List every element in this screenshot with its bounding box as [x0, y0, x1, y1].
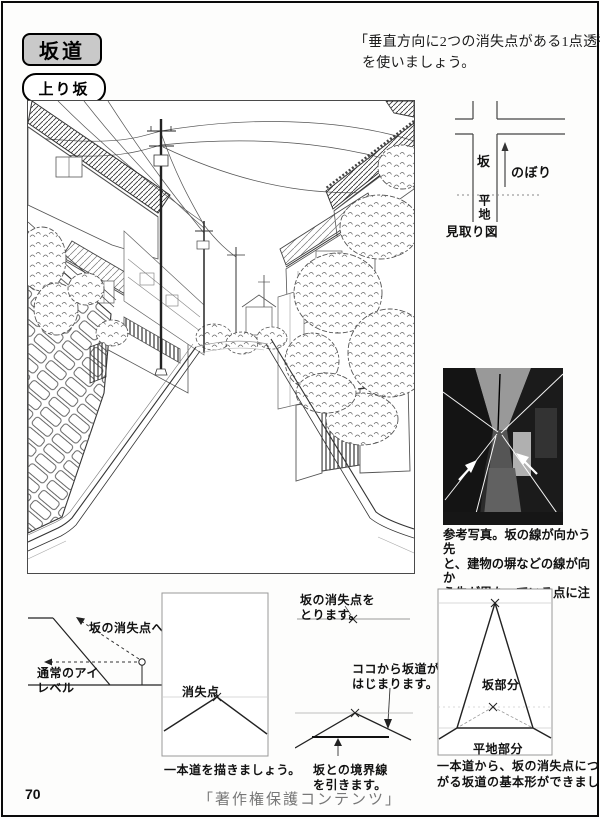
map-caption: 見取り図	[446, 221, 498, 240]
photo-caption-line2: と、建物の塀などの線が向か	[443, 557, 593, 586]
d4-slope-part-label: 坂部分	[482, 676, 520, 693]
section-label-pill: 上り坂	[22, 73, 106, 103]
street-illustration	[28, 101, 414, 573]
d2-vp-label: 消失点	[182, 683, 220, 700]
chapter-title: 坂道	[39, 35, 85, 64]
photo-caption-line1: 参考写真。坂の線が向かう先	[443, 528, 593, 557]
single-road-diagram	[160, 592, 272, 762]
d2-caption: 一本道を描きましょう。	[164, 761, 301, 778]
d4-caption-line1: 一本道から、坂の消失点につな	[437, 757, 600, 774]
uphill-arrow-head	[502, 142, 509, 151]
d1-vp-label: 坂の消失点へ	[89, 619, 164, 636]
intro-note-line2: を使いましょう。	[362, 52, 476, 72]
section-label: 上り坂	[38, 78, 89, 99]
d3-take-label2: とります。	[300, 606, 361, 623]
d4-flat-part-label: 平地部分	[473, 740, 523, 757]
intro-note-line1: 「垂直方向に2つの消失点がある1点透視」	[354, 31, 600, 51]
street-illustration-frame	[27, 100, 415, 574]
site-map-diagram	[445, 98, 585, 224]
map-nobori-label: のぼり	[511, 162, 552, 181]
map-slope-label: 坂	[477, 151, 491, 170]
d1-eyelevel-label2: レベル	[37, 679, 75, 696]
final-shape-diagram	[437, 588, 555, 758]
copyright-notice: 「著作権保護コンテンツ」	[0, 788, 600, 809]
d3-here-label2: はじまります。	[352, 675, 438, 692]
chapter-title-box: 坂道	[22, 33, 102, 66]
book-page: 坂道 「垂直方向に2つの消失点がある1点透視」 を使いましょう。 上り坂	[0, 0, 600, 819]
reference-photo	[443, 368, 563, 525]
